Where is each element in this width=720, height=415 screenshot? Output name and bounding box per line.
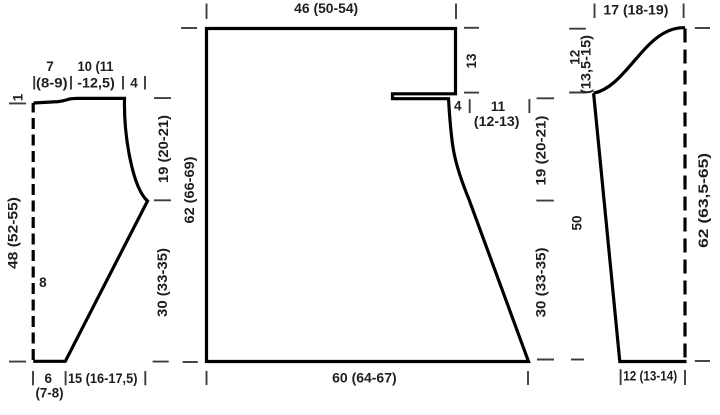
- svg-text:30 (33-35): 30 (33-35): [534, 247, 549, 317]
- svg-text:7: 7: [46, 59, 54, 74]
- svg-text:12 (13-14): 12 (13-14): [623, 369, 677, 384]
- svg-text:46 (50-54): 46 (50-54): [294, 1, 358, 16]
- svg-text:1: 1: [11, 93, 26, 101]
- svg-text:11: 11: [491, 99, 506, 114]
- svg-text:13: 13: [464, 53, 479, 69]
- svg-text:15 (16-17,5): 15 (16-17,5): [68, 371, 138, 386]
- svg-text:4: 4: [130, 76, 138, 91]
- svg-text:30 (33-35): 30 (33-35): [155, 248, 170, 317]
- svg-text:48 (52-55): 48 (52-55): [5, 197, 20, 269]
- svg-text:60 (64-67): 60 (64-67): [332, 371, 397, 386]
- svg-text:50: 50: [570, 215, 585, 230]
- svg-text:19 (20-21): 19 (20-21): [156, 115, 171, 183]
- svg-text:62 (63,5-65): 62 (63,5-65): [696, 153, 711, 248]
- svg-text:19 (20-21): 19 (20-21): [534, 116, 549, 186]
- svg-text:8: 8: [39, 275, 47, 290]
- svg-text:10 (11: 10 (11: [78, 59, 114, 74]
- svg-text:6: 6: [44, 371, 52, 386]
- svg-text:4: 4: [454, 99, 462, 114]
- svg-text:(7-8): (7-8): [36, 386, 64, 401]
- svg-text:(13,5-15): (13,5-15): [578, 35, 593, 94]
- svg-text:(8-9): (8-9): [36, 76, 68, 91]
- svg-text:62 (66-69): 62 (66-69): [182, 157, 197, 224]
- svg-text:(12-13): (12-13): [474, 114, 520, 129]
- svg-text:17 (18-19): 17 (18-19): [603, 3, 668, 18]
- svg-text:-12,5): -12,5): [77, 76, 115, 91]
